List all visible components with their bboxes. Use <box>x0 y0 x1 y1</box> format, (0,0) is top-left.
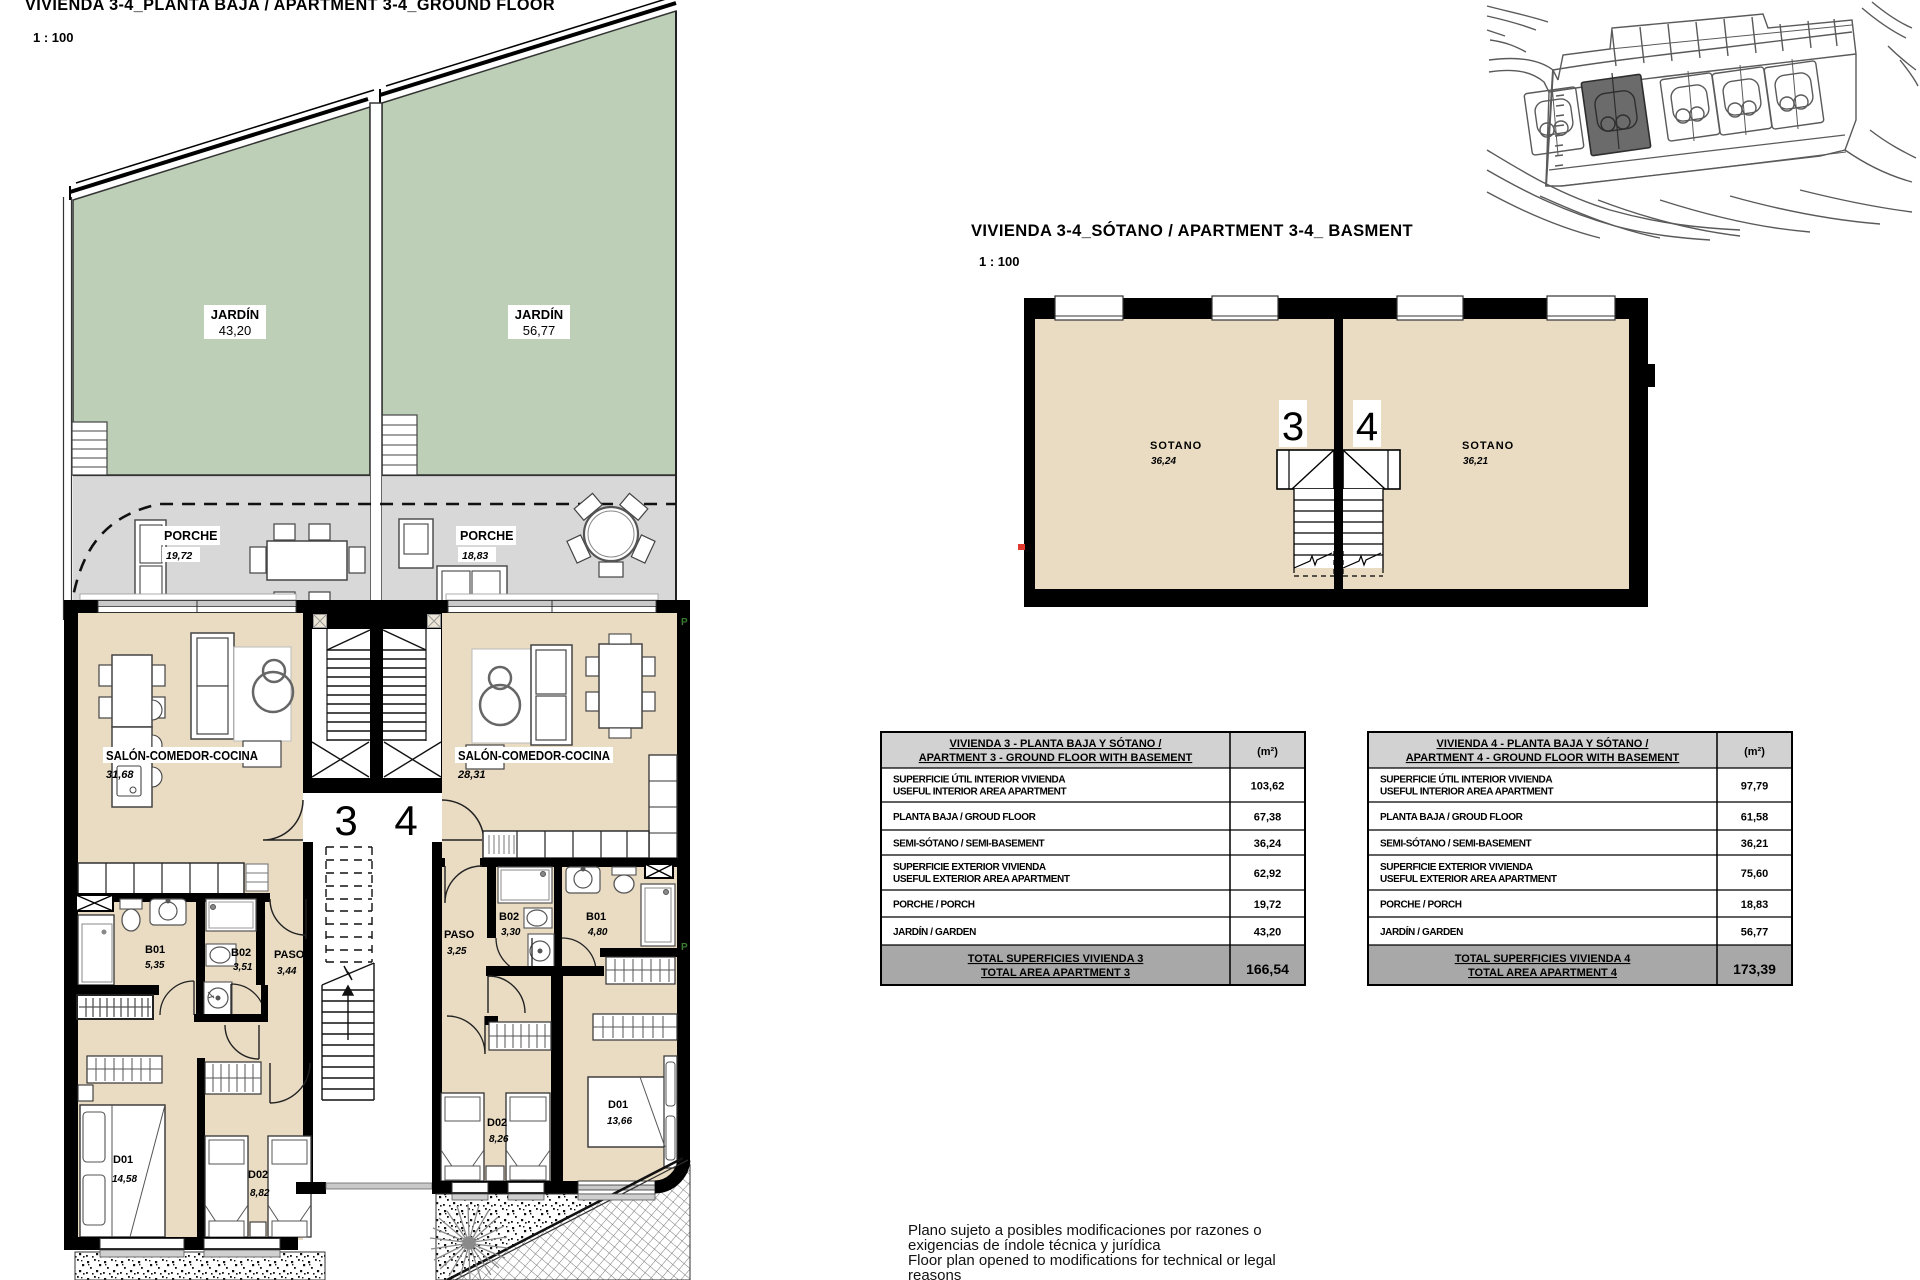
svg-text:reasons: reasons <box>908 1267 961 1280</box>
svg-text:TOTAL AREA APARTMENT 4: TOTAL AREA APARTMENT 4 <box>1468 967 1618 979</box>
svg-text:18,83: 18,83 <box>1741 899 1769 911</box>
svg-text:APARTMENT 3 - GROUND FLOOR WIT: APARTMENT 3 - GROUND FLOOR WITH BASEMENT <box>919 752 1193 764</box>
svg-text:PORCHE: PORCHE <box>164 529 217 543</box>
svg-text:SUPERFICIE EXTERIOR VIVIENDA: SUPERFICIE EXTERIOR VIVIENDA <box>893 862 1046 873</box>
svg-text:SUPERFICIE EXTERIOR VIVIENDA: SUPERFICIE EXTERIOR VIVIENDA <box>1380 862 1533 873</box>
svg-text:PORCHE / PORCH: PORCHE / PORCH <box>1380 900 1462 911</box>
svg-text:3,25: 3,25 <box>447 946 467 957</box>
svg-text:PORCHE / PORCH: PORCHE / PORCH <box>893 900 975 911</box>
svg-text:36,24: 36,24 <box>1151 456 1176 467</box>
svg-text:43,20: 43,20 <box>219 323 252 338</box>
svg-text:PORCHE: PORCHE <box>460 529 513 543</box>
svg-text:VIVIENDA 4 - PLANTA BAJA Y SÓT: VIVIENDA 4 - PLANTA BAJA Y SÓTANO / <box>1437 737 1649 750</box>
svg-text:36,21: 36,21 <box>1741 838 1769 850</box>
svg-text:P: P <box>681 942 688 953</box>
svg-text:4: 4 <box>394 797 417 844</box>
svg-text:62,92: 62,92 <box>1254 868 1282 880</box>
svg-text:USEFUL EXTERIOR AREA APARTMENT: USEFUL EXTERIOR AREA APARTMENT <box>1380 874 1557 885</box>
svg-text:61,58: 61,58 <box>1741 812 1769 824</box>
svg-text:D01: D01 <box>608 1099 628 1111</box>
svg-text:SEMI-SÓTANO / SEMI-BASEMENT: SEMI-SÓTANO / SEMI-BASEMENT <box>1380 837 1532 850</box>
svg-text:3,51: 3,51 <box>233 962 253 973</box>
svg-text:8,82: 8,82 <box>250 1188 270 1199</box>
svg-text:APARTMENT 4 - GROUND FLOOR WIT: APARTMENT 4 - GROUND FLOOR WITH BASEMENT <box>1406 752 1680 764</box>
svg-text:VIVIENDA 3 - PLANTA BAJA Y SÓT: VIVIENDA 3 - PLANTA BAJA Y SÓTANO / <box>950 737 1162 750</box>
svg-text:JARDÍN: JARDÍN <box>211 307 259 322</box>
svg-text:Floor plan opened to modificat: Floor plan opened to modifications for t… <box>908 1252 1276 1269</box>
svg-text:D02: D02 <box>248 1169 268 1181</box>
svg-text:14,58: 14,58 <box>112 1174 137 1185</box>
svg-text:USEFUL INTERIOR AREA APARTMENT: USEFUL INTERIOR AREA APARTMENT <box>1380 787 1553 798</box>
svg-text:31,68: 31,68 <box>106 769 134 781</box>
svg-text:PASO: PASO <box>274 949 305 961</box>
svg-text:JARDÍN / GARDEN: JARDÍN / GARDEN <box>1380 925 1463 938</box>
svg-text:166,54: 166,54 <box>1246 961 1289 977</box>
svg-text:67,38: 67,38 <box>1254 812 1282 824</box>
svg-text:JARDÍN: JARDÍN <box>515 307 563 322</box>
svg-text:TOTAL AREA APARTMENT 3: TOTAL AREA APARTMENT 3 <box>981 967 1130 979</box>
svg-text:B01: B01 <box>586 911 606 923</box>
svg-text:D01: D01 <box>113 1154 133 1166</box>
svg-text:28,31: 28,31 <box>457 769 486 781</box>
svg-text:1 : 100: 1 : 100 <box>979 254 1019 269</box>
svg-text:3: 3 <box>1282 405 1304 449</box>
svg-text:SALÓN-COMEDOR-COCINA: SALÓN-COMEDOR-COCINA <box>106 748 259 763</box>
svg-text:3: 3 <box>334 797 357 844</box>
svg-text:B01: B01 <box>145 944 165 956</box>
svg-text:36,21: 36,21 <box>1463 456 1488 467</box>
svg-text:4,80: 4,80 <box>587 927 608 938</box>
svg-text:36,24: 36,24 <box>1254 838 1282 850</box>
svg-text:3,30: 3,30 <box>501 927 521 938</box>
svg-text:43,20: 43,20 <box>1254 927 1282 939</box>
svg-text:97,79: 97,79 <box>1741 781 1769 793</box>
svg-text:B02: B02 <box>231 947 251 959</box>
svg-text:JARDÍN / GARDEN: JARDÍN / GARDEN <box>893 925 976 938</box>
svg-text:1 : 100: 1 : 100 <box>33 30 73 45</box>
svg-text:(m²): (m²) <box>1744 746 1765 758</box>
svg-text:PLANTA BAJA / GROUD FLOOR: PLANTA BAJA / GROUD FLOOR <box>1380 812 1524 823</box>
svg-text:19,72: 19,72 <box>166 550 192 562</box>
svg-text:P: P <box>681 617 688 628</box>
svg-text:SUPERFICIE ÚTIL INTERIOR VIVIE: SUPERFICIE ÚTIL INTERIOR VIVIENDA <box>893 773 1065 786</box>
svg-text:13,66: 13,66 <box>607 1116 632 1127</box>
svg-text:8,26: 8,26 <box>489 1134 509 1145</box>
svg-text:19,72: 19,72 <box>1254 899 1282 911</box>
svg-text:(m²): (m²) <box>1257 746 1278 758</box>
svg-text:B02: B02 <box>499 911 519 923</box>
svg-text:4: 4 <box>1356 405 1378 449</box>
svg-text:D02: D02 <box>487 1117 507 1129</box>
svg-text:18,83: 18,83 <box>462 550 488 562</box>
svg-text:5,35: 5,35 <box>145 960 165 971</box>
svg-text:VIVIENDA 3-4_SÓTANO / APARTME: VIVIENDA 3-4_SÓTANO / APARTMENT 3-4_ BAS… <box>971 221 1413 240</box>
svg-text:56,77: 56,77 <box>1741 927 1769 939</box>
svg-text:USEFUL EXTERIOR AREA APARTMENT: USEFUL EXTERIOR AREA APARTMENT <box>893 874 1070 885</box>
svg-text:75,60: 75,60 <box>1741 868 1769 880</box>
svg-text:PLANTA BAJA / GROUD FLOOR: PLANTA BAJA / GROUD FLOOR <box>893 812 1037 823</box>
svg-text:PASO: PASO <box>444 929 475 941</box>
svg-text:TOTAL SUPERFICIES VIVIENDA 3: TOTAL SUPERFICIES VIVIENDA 3 <box>968 953 1144 965</box>
svg-text:103,62: 103,62 <box>1251 781 1285 793</box>
svg-text:SEMI-SÓTANO / SEMI-BASEMENT: SEMI-SÓTANO / SEMI-BASEMENT <box>893 837 1045 850</box>
svg-text:SUPERFICIE ÚTIL INTERIOR VIVIE: SUPERFICIE ÚTIL INTERIOR VIVIENDA <box>1380 773 1552 786</box>
svg-text:173,39: 173,39 <box>1733 961 1776 977</box>
svg-text:3,44: 3,44 <box>277 966 297 977</box>
svg-text:USEFUL INTERIOR AREA APARTMENT: USEFUL INTERIOR AREA APARTMENT <box>893 787 1066 798</box>
svg-text:56,77: 56,77 <box>523 323 556 338</box>
svg-text:SOTANO: SOTANO <box>1150 440 1202 452</box>
svg-text:SOTANO: SOTANO <box>1462 440 1514 452</box>
svg-text:TOTAL SUPERFICIES VIVIENDA 4: TOTAL SUPERFICIES VIVIENDA 4 <box>1455 953 1632 965</box>
svg-text:SALÓN-COMEDOR-COCINA: SALÓN-COMEDOR-COCINA <box>458 748 611 763</box>
svg-text:VIVIENDA 3-4_PLANTA BAJA / APA: VIVIENDA 3-4_PLANTA BAJA / APARTMENT 3-4… <box>25 0 555 14</box>
